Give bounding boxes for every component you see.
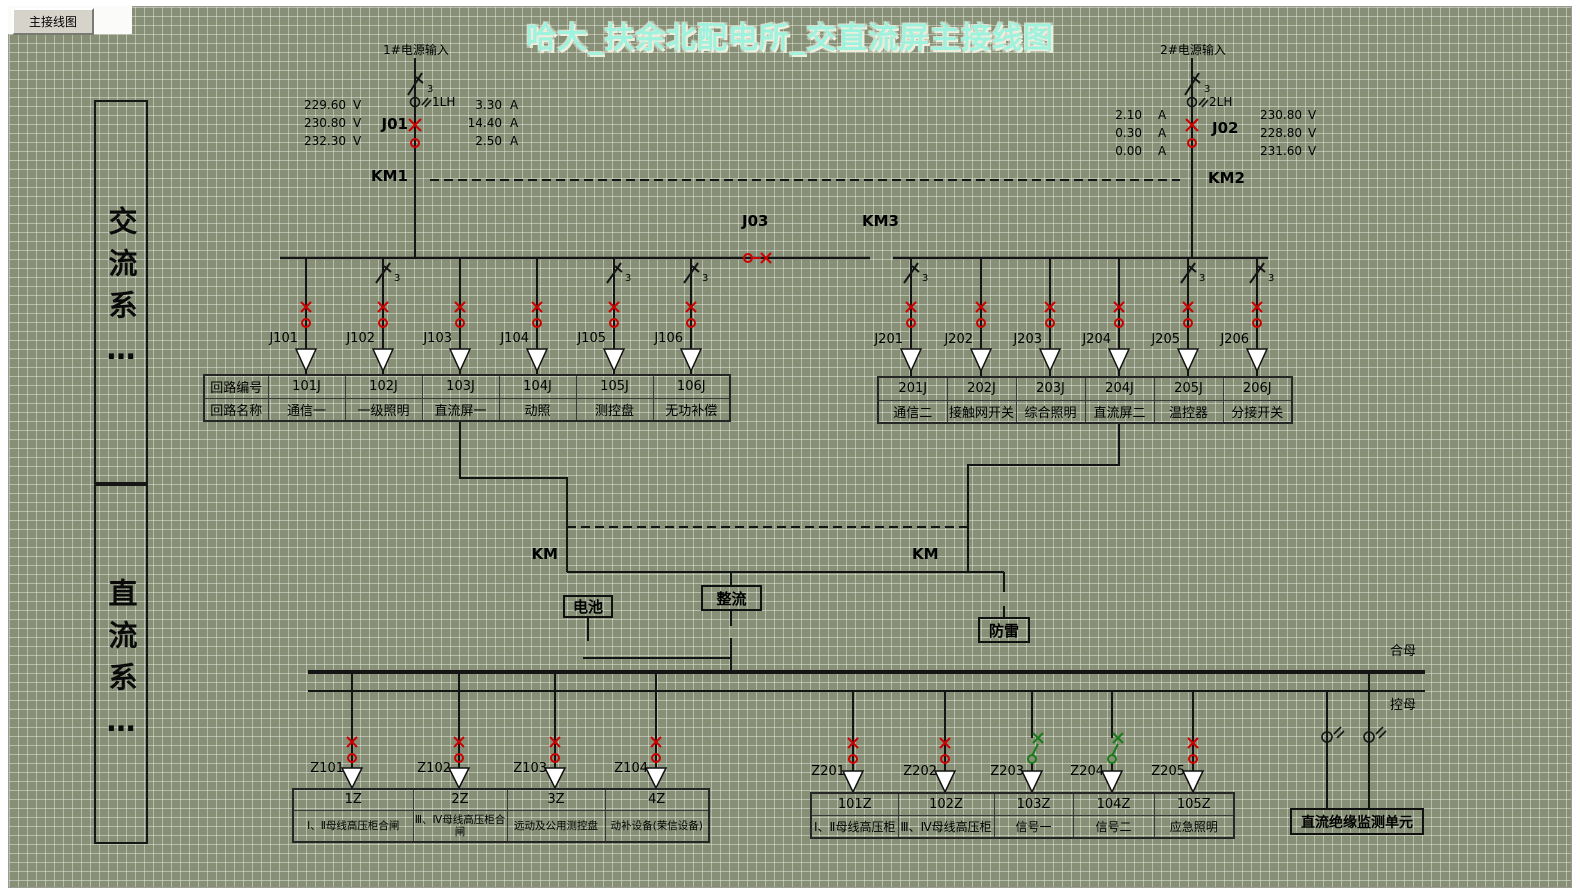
feeder-switch-label: J206 xyxy=(1201,333,1249,348)
tab-main-diagram[interactable]: 主接线图 xyxy=(12,8,94,35)
diagram-canvas xyxy=(8,6,1572,888)
cell-code: 203J xyxy=(1016,377,1085,400)
ac-feeder-table-right: 201J 202J 203J 204J 205J 206J 通信二 接触网开关 … xyxy=(877,376,1293,424)
feeder-switch-label: J106 xyxy=(635,332,683,347)
cell-code: 105Z xyxy=(1154,793,1234,815)
cell-name: 直流屏一 xyxy=(422,398,499,421)
meas-value: 230.80 xyxy=(296,117,346,131)
source1-label: 1#电源输入 xyxy=(368,44,464,58)
feeder-switch-label: J101 xyxy=(250,332,298,347)
cell-code: 101Z xyxy=(811,793,898,815)
feeder-switch-label: J203 xyxy=(994,333,1042,348)
feeder-switch-label: Z205 xyxy=(1137,765,1185,780)
cell-name: 接触网开关 xyxy=(947,400,1016,423)
meas-value: 0.00 xyxy=(1096,145,1142,159)
scada-window: { "chrome": { "tab": "主接线图" }, "title": … xyxy=(0,0,1580,895)
meas-unit: A xyxy=(1158,127,1166,141)
table-header: 回路名称 xyxy=(204,398,268,421)
cell-code: 103J xyxy=(422,375,499,398)
feeder-switch-label: Z102 xyxy=(403,762,451,777)
contactor-km1-label: KM1 xyxy=(364,168,408,185)
cell-name: Ⅰ、Ⅱ母线高压柜 xyxy=(811,815,898,838)
cell-code: 102J xyxy=(345,375,422,398)
meas-value: 2.10 xyxy=(1096,109,1142,123)
cell-code: 2Z xyxy=(413,789,507,810)
cell-code: 106J xyxy=(653,375,730,398)
meas-value: 14.40 xyxy=(450,117,502,131)
feeder-switch-label: Z101 xyxy=(296,762,344,777)
cell-name: 应急照明 xyxy=(1154,815,1234,838)
cell-code: 101J xyxy=(268,375,345,398)
cell-name: 信号一 xyxy=(994,815,1073,838)
cell-code: 205J xyxy=(1154,377,1223,400)
meas-unit: V xyxy=(1308,127,1316,141)
meas-unit: A xyxy=(510,135,518,149)
meas-unit: V xyxy=(1308,109,1316,123)
ac-system-label: 交流系… xyxy=(100,206,142,379)
meas-value: 3.30 xyxy=(450,99,502,113)
meas-unit: V xyxy=(353,135,361,149)
page-title: 哈大_扶余北配电所_交直流屏主接线图 xyxy=(440,13,1140,57)
meas-value: 231.60 xyxy=(1248,145,1302,159)
dc-km-left-label: KM xyxy=(512,546,558,563)
cell-code: 3Z xyxy=(507,789,605,810)
cell-code: 103Z xyxy=(994,793,1073,815)
feeder-switch-label: Z202 xyxy=(889,765,937,780)
feeder-switch-label: J201 xyxy=(855,333,903,348)
cell-name: 一级照明 xyxy=(345,398,422,421)
dc-system-box: 直流系… xyxy=(94,484,148,844)
dc-km-right-label: KM xyxy=(912,546,939,563)
feeder-switch-label: J204 xyxy=(1063,333,1111,348)
ac-system-box: 交流系… xyxy=(94,100,148,484)
dc-feeder-table-right: 101Z 102Z 103Z 104Z 105Z Ⅰ、Ⅱ母线高压柜 Ⅲ、Ⅳ母线高… xyxy=(810,792,1235,839)
feeder-switch-label: Z104 xyxy=(600,762,648,777)
meas-unit: A xyxy=(510,117,518,131)
cell-name: Ⅰ、Ⅱ母线高压柜合闸 xyxy=(293,810,413,842)
cell-code: 201J xyxy=(878,377,947,400)
dc-feeder-table-left: 1Z 2Z 3Z 4Z Ⅰ、Ⅱ母线高压柜合闸 Ⅲ、Ⅳ母线高压柜合闸 远动及公用测… xyxy=(292,788,710,843)
source2-ct-label: 2LH xyxy=(1209,96,1232,110)
ac-feeder-table-left: 回路编号 101J 102J 103J 104J 105J 106J 回路名称 … xyxy=(203,374,731,422)
cell-code: 105J xyxy=(576,375,653,398)
cell-name: 通信二 xyxy=(878,400,947,423)
source2-label: 2#电源输入 xyxy=(1145,44,1241,58)
cell-name: 测控盘 xyxy=(576,398,653,421)
battery-box[interactable]: 电池 xyxy=(563,595,613,618)
arrester-box[interactable]: 防雷 xyxy=(978,617,1030,643)
feeder-switch-label: Z103 xyxy=(499,762,547,777)
feeder-switch-label: Z203 xyxy=(976,765,1024,780)
contactor-km2-label: KM2 xyxy=(1208,170,1245,187)
cell-code: 104Z xyxy=(1073,793,1154,815)
feeder-switch-label: J104 xyxy=(481,332,529,347)
meas-value: 228.80 xyxy=(1248,127,1302,141)
insulation-monitor-box[interactable]: 直流绝缘监测单元 xyxy=(1290,808,1424,835)
meas-unit: V xyxy=(353,117,361,131)
cell-code: 202J xyxy=(947,377,1016,400)
cell-name: 综合照明 xyxy=(1016,400,1085,423)
cell-name: 动照 xyxy=(499,398,576,421)
breaker-j02-label: J02 xyxy=(1212,120,1238,137)
cell-name: 动补设备(荣信设备) xyxy=(605,810,709,842)
meas-value: 0.30 xyxy=(1096,127,1142,141)
tie-breaker-j03-label: J03 xyxy=(742,213,768,230)
rectifier-box[interactable]: 整流 xyxy=(701,585,762,611)
feeder-switch-label: J105 xyxy=(558,332,606,347)
meas-unit: A xyxy=(1158,145,1166,159)
meas-unit: V xyxy=(1308,145,1316,159)
cell-name: 温控器 xyxy=(1154,400,1223,423)
tie-contactor-km3-label: KM3 xyxy=(862,213,899,230)
meas-unit: A xyxy=(510,99,518,113)
dc-system-label: 直流系… xyxy=(100,578,142,751)
meas-value: 229.60 xyxy=(296,99,346,113)
meas-unit: V xyxy=(353,99,361,113)
cell-name: 直流屏二 xyxy=(1085,400,1154,423)
cell-name: 通信一 xyxy=(268,398,345,421)
cell-code: 204J xyxy=(1085,377,1154,400)
cell-code: 1Z xyxy=(293,789,413,810)
feeder-switch-label: Z204 xyxy=(1056,765,1104,780)
cell-code: 206J xyxy=(1223,377,1292,400)
meas-value: 2.50 xyxy=(450,135,502,149)
cell-name: 远动及公用测控盘 xyxy=(507,810,605,842)
cell-name: Ⅲ、Ⅳ母线高压柜 xyxy=(898,815,994,838)
breaker-j01-label: J01 xyxy=(370,116,408,133)
feeder-switch-label: Z201 xyxy=(797,765,845,780)
cell-code: 104J xyxy=(499,375,576,398)
dc-bus-control-label: 控母 xyxy=(1390,699,1416,714)
feeder-switch-label: J202 xyxy=(925,333,973,348)
table-header: 回路编号 xyxy=(204,375,268,398)
cell-code: 102Z xyxy=(898,793,994,815)
cell-name: Ⅲ、Ⅳ母线高压柜合闸 xyxy=(413,810,507,842)
cell-code: 4Z xyxy=(605,789,709,810)
meas-value: 230.80 xyxy=(1248,109,1302,123)
meas-unit: A xyxy=(1158,109,1166,123)
cell-name: 无功补偿 xyxy=(653,398,730,421)
cell-name: 信号二 xyxy=(1073,815,1154,838)
dc-bus-closing-label: 合母 xyxy=(1390,645,1416,660)
meas-value: 232.30 xyxy=(296,135,346,149)
feeder-switch-label: J205 xyxy=(1132,333,1180,348)
cell-name: 分接开关 xyxy=(1223,400,1292,423)
feeder-switch-label: J103 xyxy=(404,332,452,347)
feeder-switch-label: J102 xyxy=(327,332,375,347)
